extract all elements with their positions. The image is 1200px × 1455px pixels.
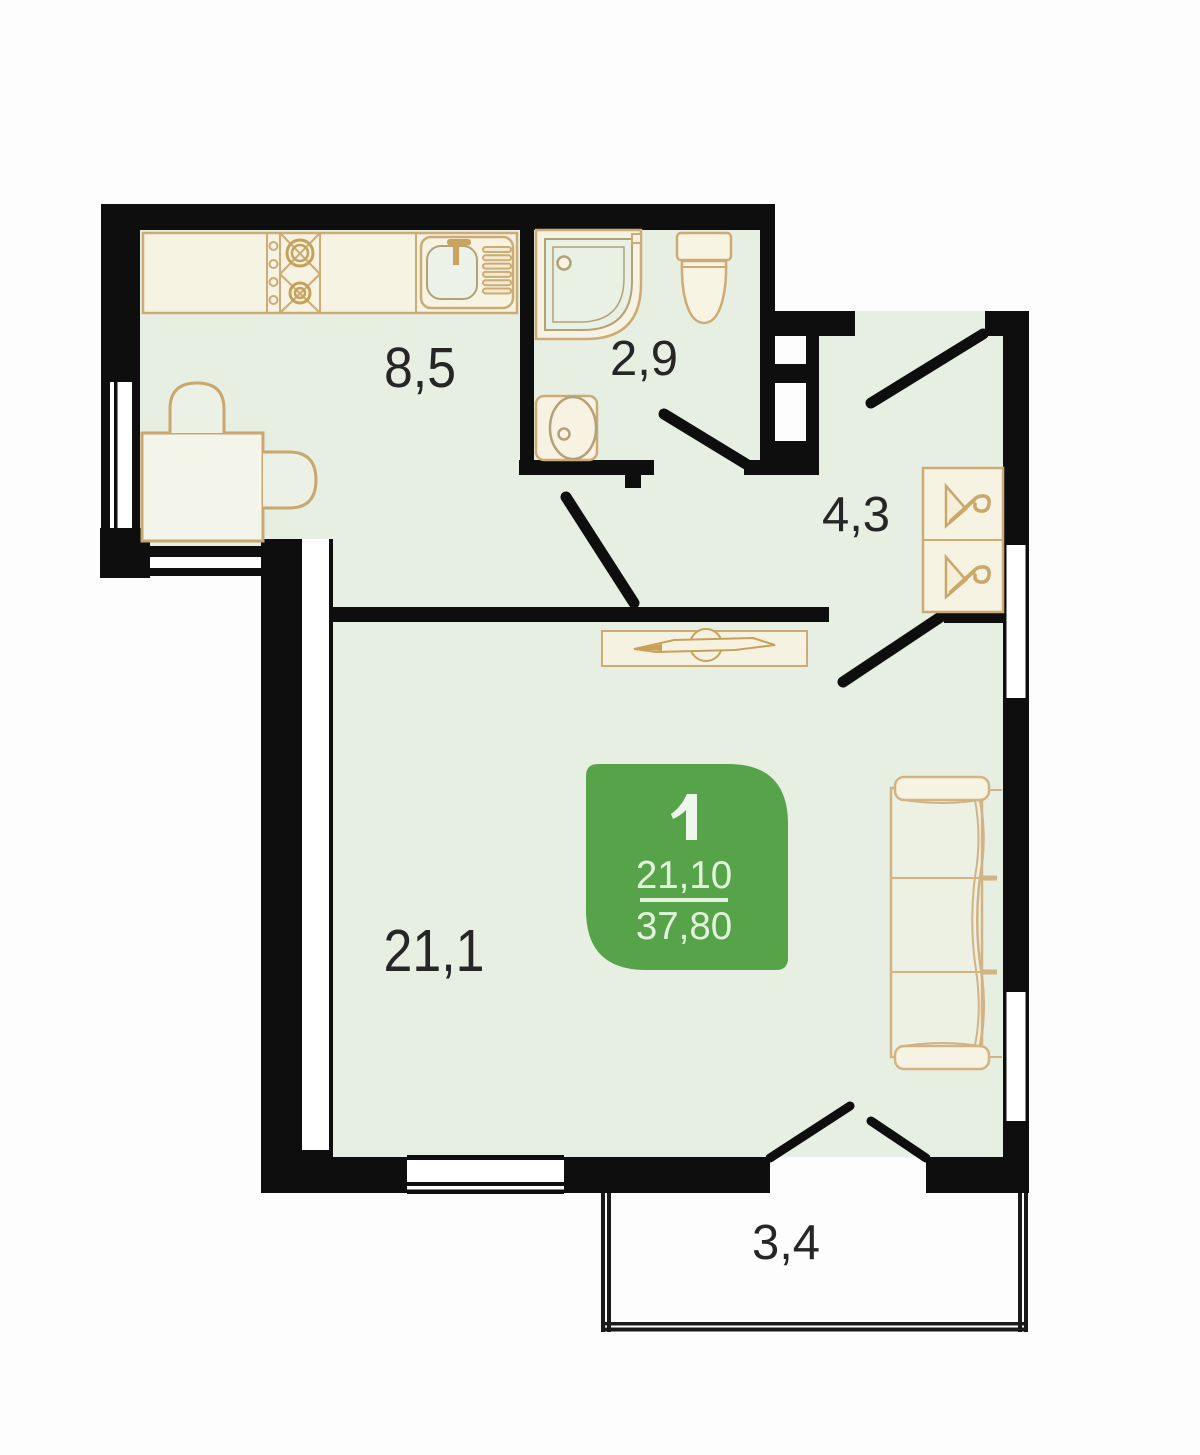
svg-text:21,10: 21,10: [636, 854, 732, 897]
svg-text:37,80: 37,80: [636, 905, 732, 948]
svg-text:3,4: 3,4: [752, 1216, 820, 1270]
svg-text:21,1: 21,1: [384, 918, 485, 984]
svg-text:8,5: 8,5: [384, 336, 456, 400]
svg-text:2,9: 2,9: [610, 332, 678, 386]
svg-text:4,3: 4,3: [822, 488, 890, 542]
